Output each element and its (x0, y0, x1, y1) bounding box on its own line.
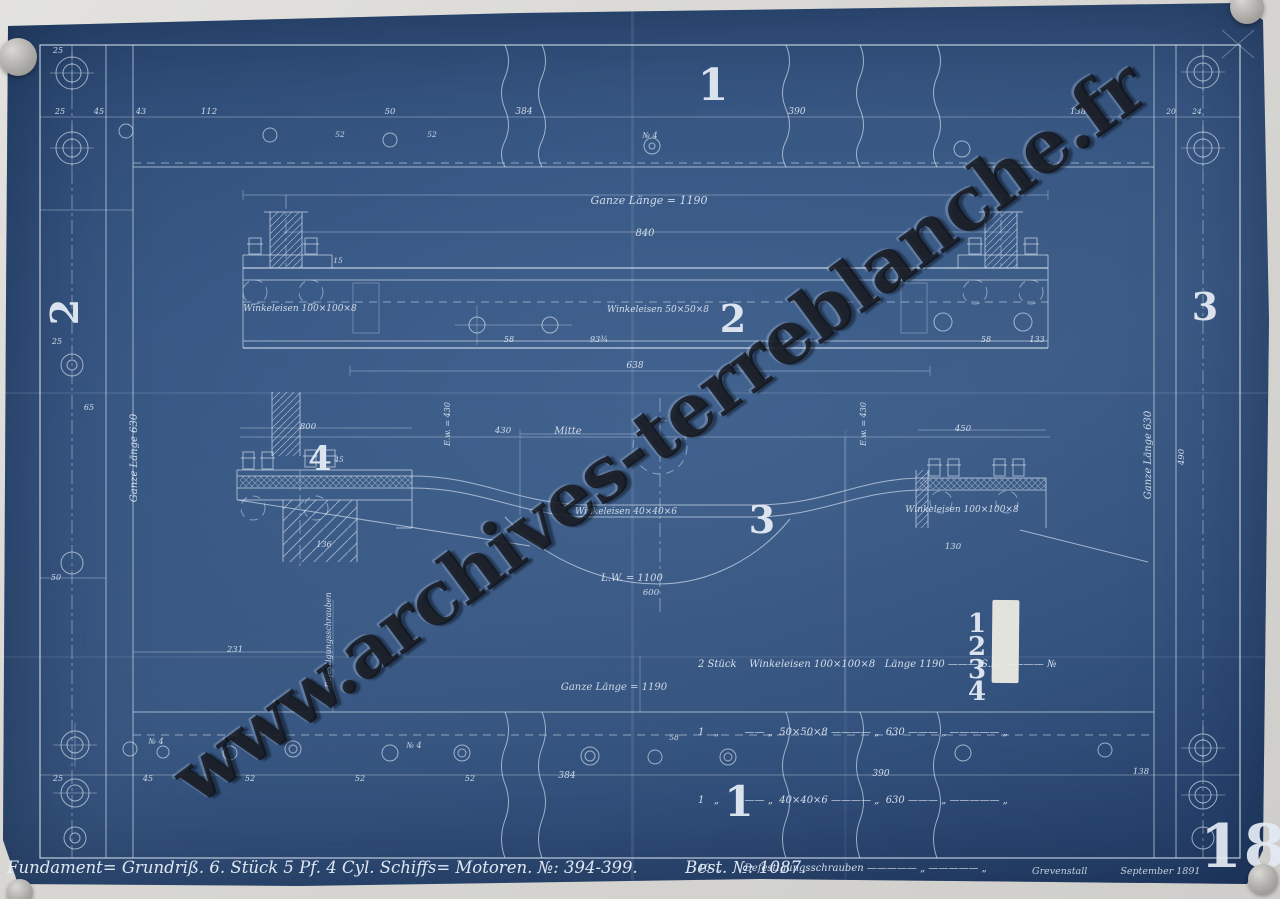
dim: 58 (669, 733, 679, 742)
label-ganze-laenge-right: Ganze Länge 630 (1143, 410, 1154, 499)
dim: 45 (142, 774, 153, 783)
label-ew-right: E.w. = 430 (859, 402, 868, 447)
dim: 45 (333, 455, 344, 464)
label-ganze-laenge-left: Ganze Länge 630 (129, 413, 140, 502)
dim: 390 (788, 107, 805, 117)
dim: 25 (54, 107, 65, 116)
dim: 231 (226, 645, 243, 655)
corner-pin-bottom-left (7, 879, 33, 899)
dim: 50 (51, 573, 61, 582)
side-label-3-right: 3 (1192, 284, 1218, 329)
label-no4-bottom-b: № 4 (405, 741, 421, 750)
dim: 800 (300, 422, 317, 432)
label-lichte-weite: L.W. = 1100 (600, 573, 663, 584)
dim: 25 (51, 337, 62, 346)
parts-list-row: 1 „ —— „ 50×50×8 ———— „ 630 ——— „ ————— … (698, 722, 988, 745)
dim: 430 (494, 426, 512, 436)
label-ew-left: E.w. = 430 (443, 402, 452, 447)
blank-paper-patch (992, 600, 1020, 683)
dim: 490 (1177, 448, 1187, 466)
dim: 58 (504, 335, 514, 344)
dim: 50 (385, 107, 396, 117)
label-winkeleisen-50: Winkeleisen 50×50×8 (607, 305, 709, 315)
dim: 93¾ (590, 335, 608, 344)
dim: 133 (1029, 335, 1044, 344)
dim: 136 (316, 540, 331, 549)
view-label-3: 3 (749, 497, 775, 542)
label-no4-top: № 4 (641, 131, 657, 140)
parts-list-line: 1 „ —— „ 50×50×8 ———— „ 630 ——— „ ————— … (698, 727, 1008, 738)
label-ganze-laenge-top: Ganze Länge = 1190 (591, 194, 708, 207)
dim: 52 (335, 130, 345, 139)
label-no4-bottom-a: № 4 (147, 737, 163, 746)
label-ganze-laenge-bottom: Ganze Länge = 1190 (561, 682, 668, 693)
parts-list-line: 1 „ —— „ 40×40×6 ———— „ 630 ——— „ ————— … (698, 795, 1008, 806)
dim: 45 (93, 107, 104, 116)
dim: 58 (981, 335, 991, 344)
dim: 450 (954, 424, 972, 434)
place: Grevenstall (1032, 866, 1087, 877)
label-mitte: Mitte (553, 426, 581, 437)
dim: 15 (333, 256, 343, 265)
parts-list-row: 2 Stück Winkeleisen 100×100×8 Länge 1190… (698, 654, 988, 677)
dim: 20 (1165, 107, 1176, 116)
title-block: Fundament= Grundriß. 6. Stück 5 Pf. 4 Cy… (7, 858, 1007, 877)
dim: 24 (1191, 107, 1202, 116)
date: September 1891 (1120, 866, 1200, 877)
dim: 43 (135, 107, 146, 116)
corner-x-mark (1222, 30, 1254, 58)
dim: 384 (558, 771, 575, 781)
drawing-title: Fundament= Grundriß. 6. Stück 5 Pf. 4 Cy… (7, 858, 638, 877)
dim: 65 (84, 403, 94, 412)
dim: 52 (465, 774, 475, 783)
dim: 112 (201, 107, 217, 117)
label-winkeleisen-100-left: Winkeleisen 100×100×8 (243, 304, 357, 314)
dim: 52 (355, 774, 365, 783)
view-label-1-top: 1 (698, 60, 729, 111)
side-label-2-left: 2 (42, 299, 87, 325)
dim-840: 840 (635, 228, 655, 239)
dim: 138 (1133, 767, 1150, 777)
signature-block: Grevenstall September 1891 (1032, 866, 1200, 877)
dim: 130 (945, 542, 962, 552)
parts-list: 2 Stück Winkeleisen 100×100×8 Länge 1190… (698, 609, 988, 899)
corner-pin-top-left (0, 38, 37, 76)
dim: 25 (52, 774, 63, 783)
view-label-4: 4 (308, 439, 332, 479)
dim: 600 (643, 588, 660, 598)
label-winkeleisen-100-right: Winkeleisen 100×100×8 (905, 505, 1019, 515)
dim: 25 (52, 46, 63, 55)
dim: 384 (515, 107, 532, 117)
order-number: Best. №: 1087. (685, 858, 806, 877)
parts-list-row: 1 „ —— „ 40×40×6 ———— „ 630 ——— „ ————— … (698, 790, 988, 813)
blueprint-photo: 12341231234Ganze Länge = 1190840Winkelei… (0, 0, 1280, 899)
dim: 638 (626, 361, 643, 371)
corner-pin-bottom-right (1248, 864, 1278, 894)
dim: 52 (427, 130, 437, 139)
bolt-heads-view3-right (927, 459, 1026, 476)
